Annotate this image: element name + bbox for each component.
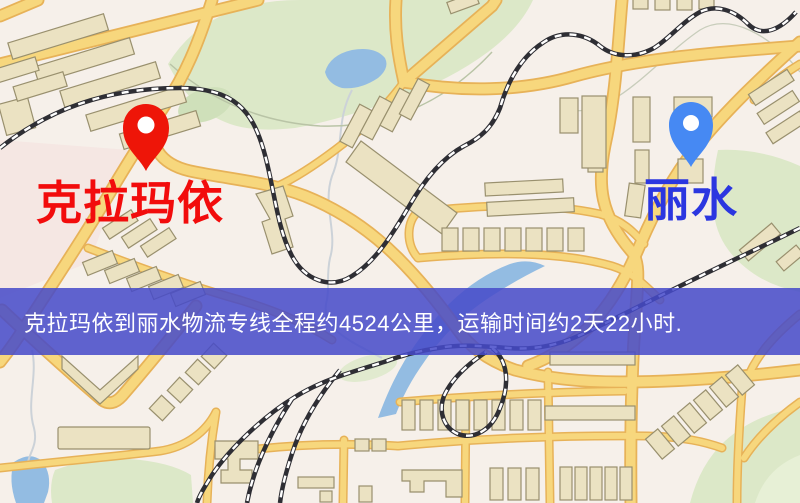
origin-city-label: 克拉玛依 <box>36 177 224 229</box>
origin-pin-hole <box>138 117 155 134</box>
route-info-text: 克拉玛依到丽水物流专线全程约4524公里，运输时间约2天22小时. <box>24 306 682 338</box>
destination-city-label: 丽水 <box>644 174 738 226</box>
map-canvas[interactable]: 克拉玛依 丽水 <box>0 0 800 503</box>
route-info-banner: 克拉玛依到丽水物流专线全程约4524公里，运输时间约2天22小时. <box>0 288 800 355</box>
destination-pin-hole <box>683 115 699 131</box>
map-screenshot: 克拉玛依 丽水 克拉玛依到丽水物流专线全程约4524公里，运输时间约2天22小时… <box>0 0 800 503</box>
